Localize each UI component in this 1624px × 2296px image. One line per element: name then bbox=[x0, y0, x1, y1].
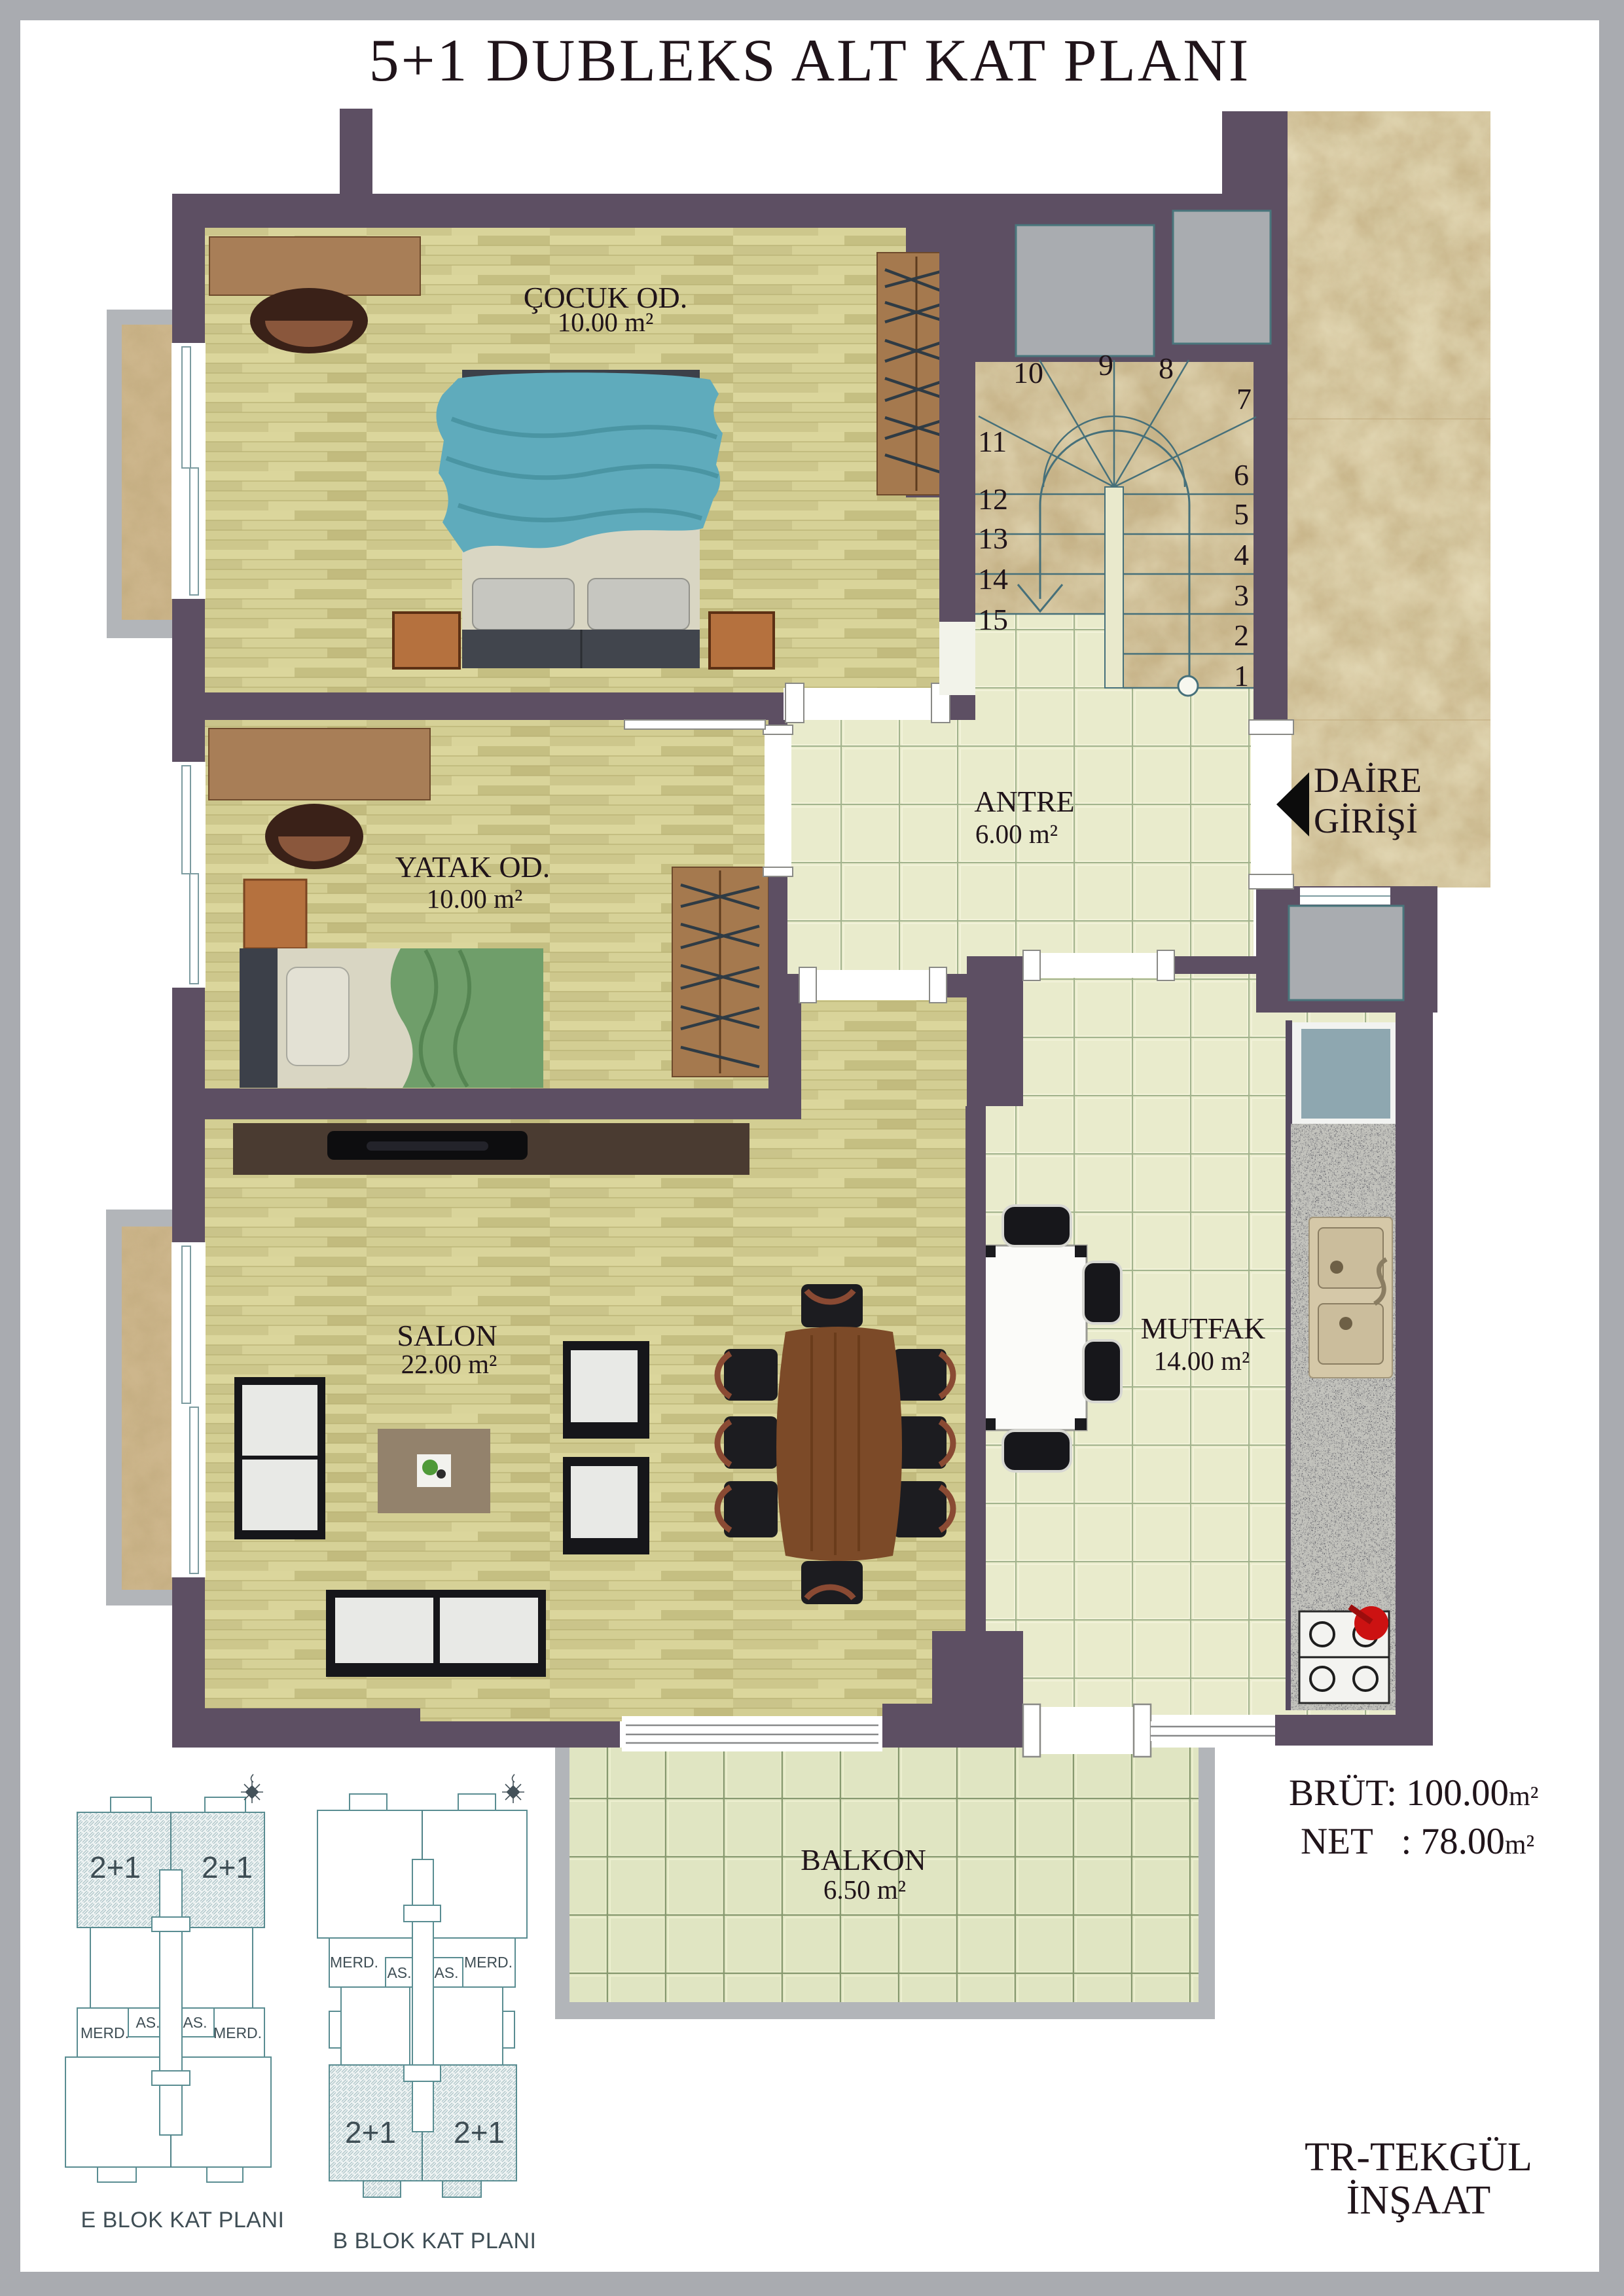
svg-text:4: 4 bbox=[1234, 538, 1249, 571]
svg-text:MERD.: MERD. bbox=[81, 2024, 129, 2041]
svg-text:13: 13 bbox=[978, 522, 1008, 555]
svg-text:5+1 DUBLEKS ALT KAT PLANI: 5+1 DUBLEKS ALT KAT PLANI bbox=[369, 27, 1251, 94]
svg-text:NET : 78.00m²: NET : 78.00m² bbox=[1301, 1821, 1534, 1862]
svg-text:2+1: 2+1 bbox=[345, 2115, 396, 2149]
svg-text:ANTRE: ANTRE bbox=[974, 785, 1074, 818]
svg-text:YATAK OD.: YATAK OD. bbox=[395, 850, 550, 884]
svg-text:6.50 m²: 6.50 m² bbox=[823, 1874, 906, 1905]
svg-text:22.00 m²: 22.00 m² bbox=[401, 1349, 497, 1379]
svg-text:11: 11 bbox=[978, 425, 1007, 458]
svg-text:2+1: 2+1 bbox=[90, 1850, 141, 1884]
svg-text:DAİRE: DAİRE bbox=[1314, 761, 1422, 800]
svg-text:2: 2 bbox=[1234, 619, 1249, 652]
svg-text:BALKON: BALKON bbox=[801, 1843, 926, 1876]
svg-text:10.00 m²: 10.00 m² bbox=[558, 307, 654, 337]
svg-text:B BLOK KAT PLANI: B BLOK KAT PLANI bbox=[333, 2229, 537, 2253]
svg-text:MUTFAK: MUTFAK bbox=[1141, 1312, 1266, 1345]
svg-text:10.00 m²: 10.00 m² bbox=[427, 884, 523, 914]
svg-text:10: 10 bbox=[1013, 356, 1043, 389]
svg-text:15: 15 bbox=[978, 603, 1008, 636]
svg-text:SALON: SALON bbox=[397, 1319, 497, 1352]
svg-text:AS.: AS. bbox=[434, 1964, 458, 1981]
svg-text:14.00 m²: 14.00 m² bbox=[1154, 1346, 1250, 1376]
svg-text:5: 5 bbox=[1234, 497, 1249, 531]
svg-text:3: 3 bbox=[1234, 579, 1249, 612]
svg-text:MERD.: MERD. bbox=[464, 1954, 513, 1971]
svg-text:12: 12 bbox=[978, 482, 1008, 516]
svg-text:TR-TEKGÜL: TR-TEKGÜL bbox=[1305, 2135, 1532, 2179]
svg-text:GİRİŞİ: GİRİŞİ bbox=[1314, 801, 1418, 840]
svg-text:6: 6 bbox=[1234, 458, 1249, 492]
svg-text:2+1: 2+1 bbox=[454, 2115, 505, 2149]
svg-text:7: 7 bbox=[1236, 382, 1252, 416]
svg-text:1: 1 bbox=[1234, 659, 1249, 692]
svg-text:AS.: AS. bbox=[387, 1964, 411, 1981]
svg-text:MERD.: MERD. bbox=[330, 1954, 378, 1971]
svg-text:BRÜT: 100.00m²: BRÜT: 100.00m² bbox=[1289, 1772, 1538, 1814]
svg-text:6.00 m²: 6.00 m² bbox=[975, 819, 1058, 849]
svg-text:8: 8 bbox=[1159, 351, 1174, 385]
svg-text:14: 14 bbox=[978, 562, 1008, 596]
svg-text:MERD.: MERD. bbox=[213, 2024, 262, 2041]
svg-text:9: 9 bbox=[1098, 348, 1113, 382]
svg-text:İNŞAAT: İNŞAAT bbox=[1346, 2178, 1490, 2223]
svg-text:2+1: 2+1 bbox=[202, 1850, 253, 1884]
svg-text:AS.: AS. bbox=[135, 2014, 160, 2031]
svg-text:AS.: AS. bbox=[183, 2014, 207, 2031]
svg-text:E BLOK KAT PLANI: E BLOK KAT PLANI bbox=[81, 2208, 285, 2233]
